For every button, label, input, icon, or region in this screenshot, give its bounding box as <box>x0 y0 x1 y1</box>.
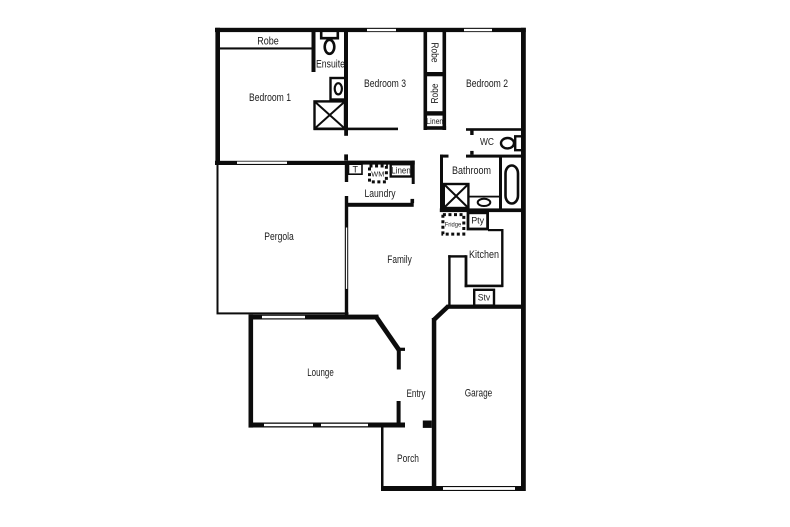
svg-text:Bathroom: Bathroom <box>452 165 491 177</box>
svg-text:Lounge: Lounge <box>307 367 334 379</box>
svg-text:Robe: Robe <box>428 43 439 63</box>
svg-text:WM: WM <box>371 170 384 179</box>
svg-text:Robe: Robe <box>430 83 441 103</box>
svg-text:Robe: Robe <box>257 35 279 47</box>
svg-text:WC: WC <box>480 137 494 148</box>
svg-text:Linen: Linen <box>426 117 443 126</box>
svg-text:Stv: Stv <box>478 292 491 303</box>
svg-text:Fridge: Fridge <box>445 222 462 229</box>
svg-text:Laundry: Laundry <box>365 188 396 200</box>
svg-text:T: T <box>353 165 359 175</box>
svg-text:Ensuite: Ensuite <box>316 58 345 70</box>
svg-text:Garage: Garage <box>465 387 493 399</box>
svg-text:Family: Family <box>387 254 412 266</box>
svg-text:Bedroom 1: Bedroom 1 <box>249 92 291 104</box>
svg-text:Bedroom 2: Bedroom 2 <box>466 78 508 90</box>
svg-text:Bedroom 3: Bedroom 3 <box>364 78 406 90</box>
svg-text:Linen: Linen <box>391 166 411 177</box>
svg-text:Kitchen: Kitchen <box>469 249 499 261</box>
svg-text:Porch: Porch <box>397 453 419 465</box>
svg-text:Entry: Entry <box>407 388 426 400</box>
svg-text:Pty: Pty <box>471 215 484 226</box>
svg-text:Pergola: Pergola <box>264 231 294 243</box>
